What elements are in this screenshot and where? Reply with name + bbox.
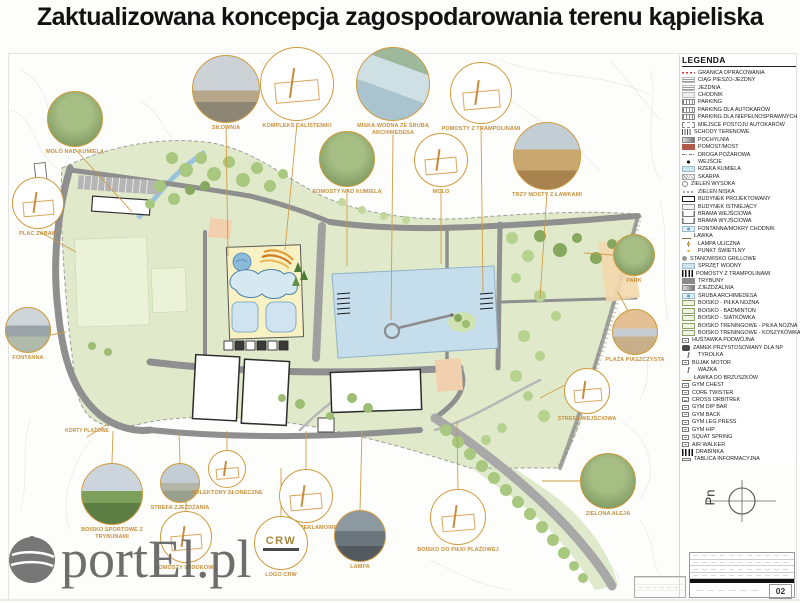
legend-item-boisko-treningowe-koszykówka: BOISKO TRENINGOWE - KOSZYKÓWKA (682, 329, 796, 336)
grill-icon (682, 256, 687, 261)
legend-item-parking-dla-niepełnosprawnych: PARKING DLA NIEPEŁNOSPRAWNYCH (682, 114, 796, 121)
legend-item-label: POMOST/MOST (698, 144, 739, 149)
legend-item-label: BUJAK MOTOR (692, 360, 731, 365)
legend-item-label: HUŚTAWKA PODWÓJNA (692, 338, 754, 343)
legend-item-parking-dla-autokarów: PARKING DLA AUTOKARÓW (682, 106, 796, 113)
legend-item-label: SQUAT SPRING (692, 434, 732, 439)
legend-item-label: BOISKO TRENINGOWE - KOSZYKÓWKA (698, 330, 800, 335)
legend-item-zieleń-niska: ZIELEŃ NISKA (682, 188, 796, 195)
screenshot-root: Zaktualizowana koncepcja zagospodarowani… (0, 0, 800, 603)
tramp-icon (682, 449, 693, 456)
stands-icon (682, 278, 695, 284)
legend-item-label: ZAMEK PRZYSTOSOWANY DLA NP (693, 345, 783, 350)
treehi-icon (682, 181, 688, 187)
callout-label: PLAC ZABAW (0, 231, 80, 238)
legend-title: LEGENDA (682, 55, 796, 67)
callout-ring (612, 309, 658, 355)
legend-item-chodnik: CHODNIK (682, 91, 796, 98)
court-icon (682, 308, 695, 314)
legend-item-lampa-uliczna: LAMPA ULICZNA (682, 240, 796, 247)
callout-label: MOLO NAD KUMIELĄ (33, 149, 117, 156)
legend-item-label: POMOSTY Z TRAMPOLINAMI (696, 271, 770, 276)
court-icon (682, 315, 695, 321)
plan-label-korty-plażowe: KORTY PLAŻOWE (57, 428, 117, 434)
steps-icon (682, 129, 691, 135)
gym-icon (682, 420, 689, 425)
river-icon (682, 166, 695, 172)
legend-item-drabinka: DRABINKA (682, 448, 796, 455)
court-icon (682, 323, 695, 329)
legend-item-gym-back: GYM BACK (682, 411, 796, 418)
callout-label: LOGO CRW (239, 572, 323, 579)
title-block: 02 (634, 552, 796, 599)
legend-item-label: DRABINKA (696, 449, 724, 454)
legend-item-label: PARKING DLA NIEPEŁNOSPRAWNYCH (698, 115, 797, 120)
puzzle-logo-icon (6, 533, 58, 585)
legend-item-label: BOISKO - BADMINTON (698, 308, 756, 313)
legend-item-boisko-piłka-nożna: BOISKO - PIŁKA NOŻNA (682, 300, 796, 307)
ramp-icon (682, 285, 695, 291)
legend-item-label: ŁAWKA (694, 234, 713, 239)
legend-item-fontanna-mokry-chodnik: FONTANNA/MOKRY CHODNIK (682, 225, 796, 232)
callout-ring (192, 55, 260, 123)
crw-logo-text: CRW (266, 535, 297, 547)
lake (332, 266, 498, 358)
legend-item-label: GYM DIP BAR (692, 405, 727, 410)
callout-ring (334, 510, 386, 562)
callout-ring (356, 47, 430, 121)
legend-item-label: SKARPA (698, 174, 720, 179)
legend-item-label: BOISKO TRENINGOWE - PIŁKA NOŻNA (698, 323, 798, 328)
legend-item-granica-opracowania: GRANICA OPRACOWANIA (682, 69, 796, 76)
gym-icon (682, 412, 689, 417)
legend-item-label: CORE TWISTER (692, 390, 733, 395)
legend-item-label: STANOWISKO GRILLOWE (690, 256, 756, 261)
dashbox-icon (682, 122, 695, 128)
legend-item-ławka: ŁAWKA (682, 233, 796, 240)
legend-item-label: MIEJSCE POSTOJU AUTOKARÓW (698, 122, 785, 127)
legend-item-gym-chest: GYM CHEST (682, 381, 796, 388)
callout-ring: CRW (254, 516, 308, 570)
callout-ring (12, 177, 64, 229)
light-icon (682, 248, 695, 254)
page-title: Zaktualizowana koncepcja zagospodarowani… (0, 3, 800, 32)
board-icon (682, 458, 691, 461)
legend-item-label: ŁAWKA DO BRZUSZKÓW (694, 375, 758, 380)
legend-item-sprzęt-wodny: SPRZĘT WODNY (682, 262, 796, 269)
legend-item-trybuny: TRYBUNY (682, 277, 796, 284)
legend-item-label: GYM HIP (692, 427, 715, 432)
bench-icon (682, 233, 691, 239)
legend-item-label: TRYBUNY (698, 278, 724, 283)
callout-ring (319, 131, 375, 187)
park-icon (682, 99, 695, 105)
callout-ring (613, 234, 655, 276)
tramp-icon (682, 270, 693, 277)
legend-item-label: ZIELEŃ WYSOKA (691, 182, 735, 187)
legend-item-label: CROSS ORBITREK (692, 397, 740, 402)
legend-item-rzeka-kumiela: RZEKA KUMIELA (682, 166, 796, 173)
legend-item-gym-hip: GYM HIP (682, 426, 796, 433)
watermark-text: portEl.pl (61, 532, 251, 586)
legend-item-core-twister: CORE TWISTER (682, 389, 796, 396)
north-arrow: Pn (700, 478, 780, 529)
bldgold-icon (682, 204, 695, 210)
callout-label: MOLO (399, 189, 483, 196)
court-icon (682, 300, 695, 306)
legend-item-ciąg-pieszo-jezdny: CIĄG PIESZO-JEZDNY (682, 76, 796, 83)
callout-label: POMOSTY NAD KUMIELĄ (305, 189, 389, 196)
scarp-icon (682, 174, 695, 180)
callout-ring (160, 463, 200, 503)
page-number: 02 (769, 584, 792, 599)
legend-item-label: TABLICA INFORMACYJNA (694, 457, 760, 462)
legend-item-tyrolka: TYROLKA (682, 352, 796, 359)
legend-item-label: ŚRUBA ARCHIMEDESA (698, 293, 757, 298)
dashred-icon (682, 70, 695, 76)
gate-icon (682, 211, 695, 217)
court-icon (682, 330, 695, 336)
fountain-icon (682, 226, 695, 232)
gym-icon (682, 338, 689, 343)
gym-icon (682, 435, 689, 440)
legend-item-label: POCHYLNIA (698, 137, 729, 142)
legend-item-śruba-archimedesa: ŚRUBA ARCHIMEDESA (682, 292, 796, 299)
legend-item-label: BUDYNEK PROJEKTOWANY (698, 196, 771, 201)
legend-item-label: GRANICA OPRACOWANIA (698, 70, 765, 75)
legend-item-cross-orbitrek: CROSS ORBITREK (682, 396, 796, 403)
legend-item-label: RZEKA KUMIELA (698, 167, 741, 172)
treelo-icon (682, 189, 695, 195)
legend-item-boisko-badminton: BOISKO - BADMINTON (682, 307, 796, 314)
legend-item-label: BRAMA WEJŚCIOWA (698, 211, 752, 216)
callout-label: TRZY MOSTY Z ŁAWKAMI (505, 192, 589, 199)
legend-item-skarpa: SKARPA (682, 173, 796, 180)
legend-item-label: FONTANNA/MOKRY CHODNIK (698, 226, 775, 231)
legend-item-label: BOISKO - SIATKÓWKA (698, 315, 755, 320)
legend-item-parking: PARKING (682, 99, 796, 106)
lines-icon (682, 77, 695, 83)
legend-item-budynek-projektowany: BUDYNEK PROJEKTOWANY (682, 195, 796, 202)
callout-label: MISKA WODNA ZE ŚRUBĄ ARCHIMEDESA (351, 123, 435, 137)
callout-ring (81, 463, 143, 525)
callout-ring (260, 47, 334, 121)
legend-item-stanowisko-grillowe: STANOWISKO GRILLOWE (682, 255, 796, 262)
zip-icon (682, 367, 695, 373)
legend-item-label: DROGA POŻAROWA (698, 152, 750, 157)
pool-complex (226, 245, 308, 340)
legend-item-label: LAMPA ULICZNA (698, 241, 740, 246)
legend-item-label: ZJEŻDŻALNIA (698, 286, 734, 291)
callout-ring (414, 133, 468, 187)
gym-icon (682, 383, 689, 388)
title-block-table: 02 (689, 552, 795, 598)
gym-icon (682, 390, 689, 395)
walk-icon (682, 92, 695, 98)
callout-ring (208, 450, 246, 488)
bridge-icon (682, 144, 695, 150)
crw-logo-bar (263, 548, 299, 551)
title-block-left-table (634, 576, 686, 598)
legend-item-brama-wyjściowa: BRAMA WYJŚCIOWA (682, 218, 796, 225)
legend-item-boisko-siatkówka: BOISKO - SIATKÓWKA (682, 314, 796, 321)
callout-label: ZIELONA ALEJA (566, 511, 650, 518)
legend-item-jezdnia: JEZDNIA (682, 84, 796, 91)
legend-item-label: GYM BACK (692, 412, 721, 417)
legend-item-ważka: WAŻKA (682, 367, 796, 374)
legend-item-label: BUDYNEK ISTNIEJĄCY (698, 204, 757, 209)
callout-label: STREFA WEJŚCIOWA (545, 416, 629, 423)
fountain-icon (682, 293, 695, 299)
legend: LEGENDA GRANICA OPRACOWANIACIĄG PIESZO-J… (682, 55, 796, 463)
north-label: Pn (702, 490, 717, 506)
legend-item-label: ZIELEŃ NISKA (698, 189, 735, 194)
legend-item-squat-spring: SQUAT SPRING (682, 433, 796, 440)
legend-item-pomost-most: POMOST/MOST (682, 143, 796, 150)
legend-item-zieleń-wysoka: ZIELEŃ WYSOKA (682, 181, 796, 188)
callout-ring (47, 91, 103, 147)
legend-item-label: BRAMA WYJŚCIOWA (698, 219, 752, 224)
watermark: portEl.pl (6, 532, 251, 586)
legend-item-zamek-przystosowany-dla-np: ZAMEK PRZYSTOSOWANY DLA NP (682, 344, 796, 351)
legend-item-wejście: WEJŚCIE (682, 158, 796, 165)
legend-item-zjeżdżalnia: ZJEŻDŻALNIA (682, 285, 796, 292)
bench-icon (682, 375, 691, 381)
legend-item-pomosty-z-trampolinami: POMOSTY Z TRAMPOLINAMI (682, 270, 796, 277)
legend-item-label: SCHODY TERENOWE (694, 130, 750, 135)
park-icon (682, 114, 695, 120)
callout-label: BOISKO DO PIŁKI PLAŻOWEJ (416, 547, 500, 554)
legend-list: GRANICA OPRACOWANIACIĄG PIESZO-JEZDNYJEZ… (682, 69, 796, 463)
gym-icon (682, 397, 689, 402)
legend-item-miejsce-postoju-autokarów: MIEJSCE POSTOJU AUTOKARÓW (682, 121, 796, 128)
callout-ring (564, 368, 610, 414)
bldgnew-icon (682, 196, 695, 202)
callout-label: KOLEKTORY SŁONECZNE (185, 490, 269, 497)
callout-label: PARK (592, 278, 676, 285)
lamp-icon (682, 241, 695, 247)
callout-label: LAMPA (318, 564, 402, 571)
legend-item-label: PARKING DLA AUTOKARÓW (698, 107, 770, 112)
legend-item-ławka-do-brzuszków: ŁAWKA DO BRZUSZKÓW (682, 374, 796, 381)
legend-item-air-walker: AIR WALKER (682, 441, 796, 448)
legend-item-label: SPRZĘT WODNY (698, 263, 741, 268)
legend-item-schody-terenowe: SCHODY TERENOWE (682, 129, 796, 136)
legend-item-huśtawka-podwójna: HUŚTAWKA PODWÓJNA (682, 337, 796, 344)
callout-label: POMOSTY Z TRAMPOLINAMI (439, 126, 523, 133)
legend-item-gym-leg-press: GYM LEG PRESS (682, 419, 796, 426)
legend-item-label: PARKING (698, 100, 722, 105)
legend-item-label: BOISKO - PIŁKA NOŻNA (698, 301, 759, 306)
legend-item-label: GYM CHEST (692, 382, 724, 387)
legend-item-pochylnia: POCHYLNIA (682, 136, 796, 143)
blob-icon (682, 345, 690, 351)
legend-item-label: WAŻKA (698, 368, 717, 373)
legend-item-brama-wejściowa: BRAMA WEJŚCIOWA (682, 210, 796, 217)
entry-icon (682, 159, 695, 165)
zip-icon (682, 352, 695, 358)
legend-item-droga-pożarowa: DROGA POŻAROWA (682, 151, 796, 158)
dashdot-icon (682, 152, 695, 158)
gym-icon (682, 405, 689, 410)
legend-item-gym-dip-bar: GYM DIP BAR (682, 404, 796, 411)
legend-item-bujak-motor: BUJAK MOTOR (682, 359, 796, 366)
legend-item-tablica-informacyjna: TABLICA INFORMACYJNA (682, 456, 796, 463)
lines-icon (682, 85, 695, 91)
legend-item-label: GYM LEG PRESS (692, 420, 736, 425)
callout-ring (513, 122, 581, 190)
callout-ring (580, 453, 636, 509)
legend-item-punkt-świetlny: PUNKT ŚWIETLNY (682, 248, 796, 255)
callout-label: FONTANNA (0, 355, 70, 362)
callout-label: PLAŻA PIASZCZYSTA (593, 357, 677, 364)
legend-item-label: JEZDNIA (698, 85, 721, 90)
callout-ring (450, 62, 512, 124)
river-icon (682, 263, 695, 269)
gym-icon (682, 427, 689, 432)
legend-item-label: TYROLKA (698, 353, 723, 358)
legend-item-label: CHODNIK (698, 92, 723, 97)
legend-item-boisko-treningowe-piłka-nożna: BOISKO TRENINGOWE - PIŁKA NOŻNA (682, 322, 796, 329)
legend-item-label: CIĄG PIESZO-JEZDNY (698, 77, 755, 82)
callout-ring (430, 489, 486, 545)
legend-item-label: AIR WALKER (692, 442, 725, 447)
callout-label: KOMPLEKS CALISTENIKI (255, 123, 339, 130)
callout-ring (279, 469, 333, 523)
gym-icon (682, 442, 689, 447)
legend-item-budynek-istniejący: BUDYNEK ISTNIEJĄCY (682, 203, 796, 210)
ramp-icon (682, 137, 695, 143)
legend-item-label: WEJŚCIE (698, 159, 722, 164)
callout-ring (5, 307, 51, 353)
gate-icon (682, 218, 695, 224)
legend-item-label: PUNKT ŚWIETLNY (698, 249, 745, 254)
park-icon (682, 107, 695, 113)
gym-icon (682, 360, 689, 365)
